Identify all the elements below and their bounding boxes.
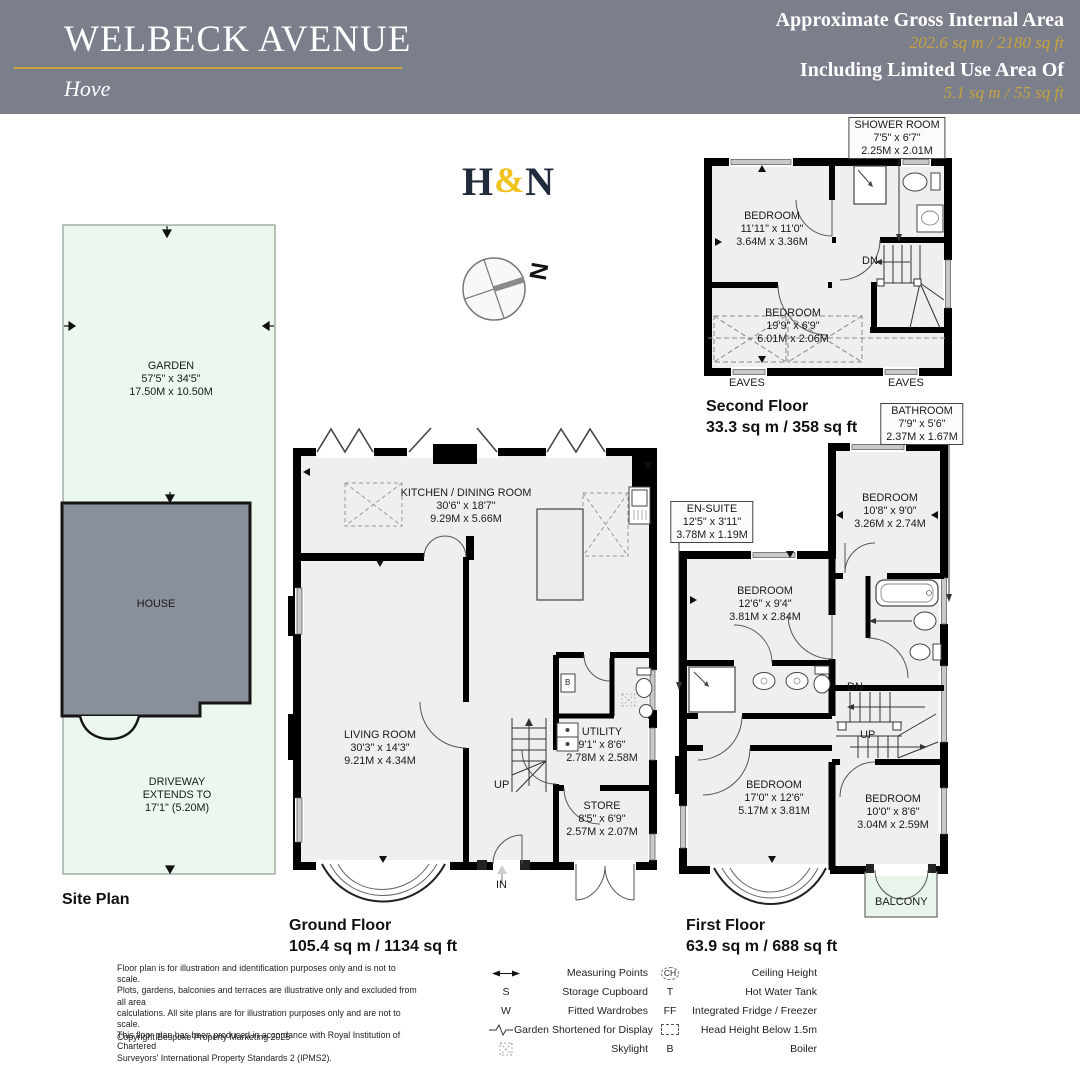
- ensuite-label: EN-SUITE 12'5" x 3'11" 3.78M x 1.19M: [670, 501, 753, 543]
- ff-up-label: UP: [860, 729, 875, 741]
- gf-in-label: IN: [496, 879, 507, 891]
- garden-label: GARDEN 57'5" x 34'5" 17.50M x 10.50M: [129, 360, 212, 398]
- fitted-wardrobes-symbol: W: [488, 1005, 524, 1017]
- compass: [463, 258, 525, 320]
- legend-row-boiler: B Boiler: [652, 1039, 817, 1058]
- legend-column-1: Measuring Points S Storage Cupboard W Fi…: [488, 964, 648, 1058]
- measuring-points-icon: [488, 969, 524, 978]
- site-plan-title: Site Plan: [62, 889, 130, 910]
- house-label: HOUSE: [137, 598, 175, 611]
- fridge-freezer-symbol: FF: [652, 1005, 688, 1017]
- second-floor-title: Second Floor 33.3 sq m / 358 sq ft: [706, 396, 857, 438]
- legend-row-fridge-freezer: FF Integrated Fridge / Freezer: [652, 1002, 817, 1021]
- legend-row-ceiling-height: CH Ceiling Height: [652, 964, 817, 983]
- shower-room-label: SHOWER ROOM 7'5" x 6'7" 2.25M x 2.01M: [848, 117, 945, 159]
- gf-up-label: UP: [494, 779, 509, 791]
- ground-floor-title: Ground Floor 105.4 sq m / 1134 sq ft: [289, 915, 457, 957]
- store-label: STORE 8'5" x 6'9" 2.57M x 2.07M: [566, 800, 637, 838]
- legend-row-skylight: Skylight: [488, 1039, 648, 1058]
- ceiling-height-symbol: CH: [661, 967, 679, 980]
- legend-column-2: CH Ceiling Height T Hot Water Tank FF In…: [652, 964, 817, 1058]
- hot-water-tank-symbol: T: [652, 986, 688, 998]
- legend-row-wardrobes: W Fitted Wardrobes: [488, 1002, 648, 1021]
- eaves-left-label: EAVES: [729, 377, 765, 389]
- kitchen-label: KITCHEN / DINING ROOM 30'6" x 18'7" 9.29…: [401, 487, 532, 525]
- skylight-icon: [488, 1042, 524, 1056]
- sf-bedroom-front-label: BEDROOM 11'11" x 11'0" 3.64M x 3.36M: [736, 210, 807, 248]
- garden-shortened-icon: [488, 1023, 514, 1037]
- ff-dn-label: DN: [847, 681, 863, 693]
- bedroom-rear-label: BEDROOM 10'8" x 9'0" 3.26M x 2.74M: [854, 492, 925, 530]
- bathroom-label: BATHROOM 7'9" x 5'6" 2.37M x 1.67M: [880, 403, 963, 445]
- bedroom-small-label: BEDROOM 10'0" x 8'6" 3.04M x 2.59M: [857, 793, 928, 831]
- head-height-icon: [661, 1024, 679, 1035]
- utility-label: UTILITY 9'1" x 8'6" 2.78M x 2.58M: [566, 726, 637, 764]
- legend-row-garden-shortened: Garden Shortened for Display: [488, 1020, 648, 1039]
- bedroom-front-label: BEDROOM 17'0" x 12'6" 5.17M x 3.81M: [738, 779, 809, 817]
- boiler-symbol: B: [652, 1043, 688, 1055]
- gf-boiler-label: B: [565, 678, 570, 687]
- living-room-label: LIVING ROOM 30'3" x 14'3" 9.21M x 4.34M: [344, 729, 416, 767]
- sf-bedroom-eaves-label: BEDROOM 19'9" x 6'9" 6.01M x 2.06M: [757, 307, 828, 345]
- balcony-label: BALCONY: [875, 896, 928, 908]
- legend-row-storage: S Storage Cupboard: [488, 983, 648, 1002]
- legend-row-head-height: Head Height Below 1.5m: [652, 1020, 817, 1039]
- storage-cupboard-symbol: S: [488, 986, 524, 998]
- disclaimer-text: Floor plan is for illustration and ident…: [117, 963, 421, 1064]
- copyright-text: Copyright Bespoke Property Marketing 202…: [117, 1032, 290, 1042]
- sf-dn-label: DN: [862, 255, 878, 267]
- floorplan-graphics: [0, 0, 1080, 1080]
- legend-row-hot-water-tank: T Hot Water Tank: [652, 983, 817, 1002]
- legend-row-measuring-points: Measuring Points: [488, 964, 648, 983]
- bedroom-mid-label: BEDROOM 12'6" x 9'4" 3.81M x 2.84M: [729, 585, 800, 623]
- eaves-right-label: EAVES: [888, 377, 924, 389]
- first-floor-title: First Floor 63.9 sq m / 688 sq ft: [686, 915, 837, 957]
- driveway-label: DRIVEWAY EXTENDS TO 17'1" (5.20M): [143, 776, 212, 814]
- floorplan-page: WELBECK AVENUE Hove Approximate Gross In…: [0, 0, 1080, 1080]
